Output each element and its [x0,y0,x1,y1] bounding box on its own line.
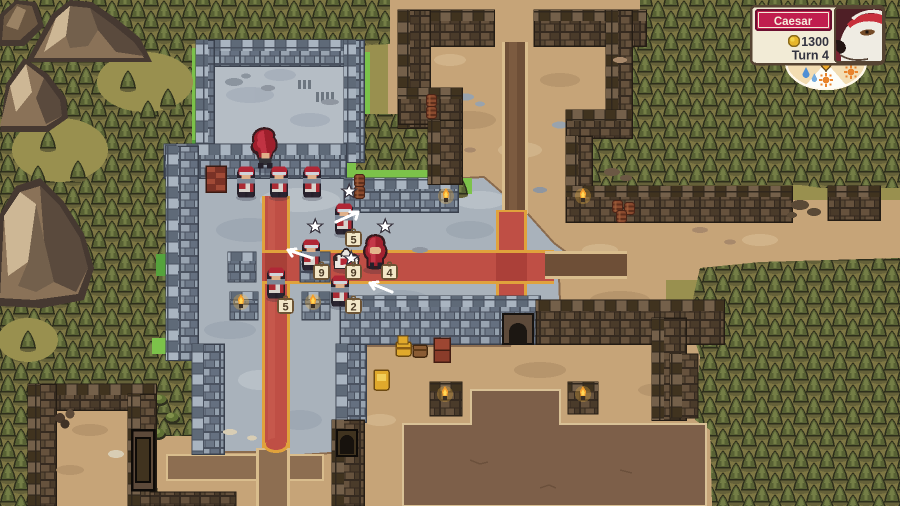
svg-text:Caesar: Caesar [774,16,813,28]
svg-text:9: 9 [318,268,324,280]
svg-text:1300: 1300 [801,35,829,49]
svg-text:2: 2 [350,302,356,314]
svg-text:5: 5 [282,302,288,314]
svg-text:4: 4 [386,268,393,280]
svg-text:Turn 4: Turn 4 [792,49,829,63]
svg-text:9: 9 [350,268,356,280]
svg-text:5: 5 [350,235,356,247]
